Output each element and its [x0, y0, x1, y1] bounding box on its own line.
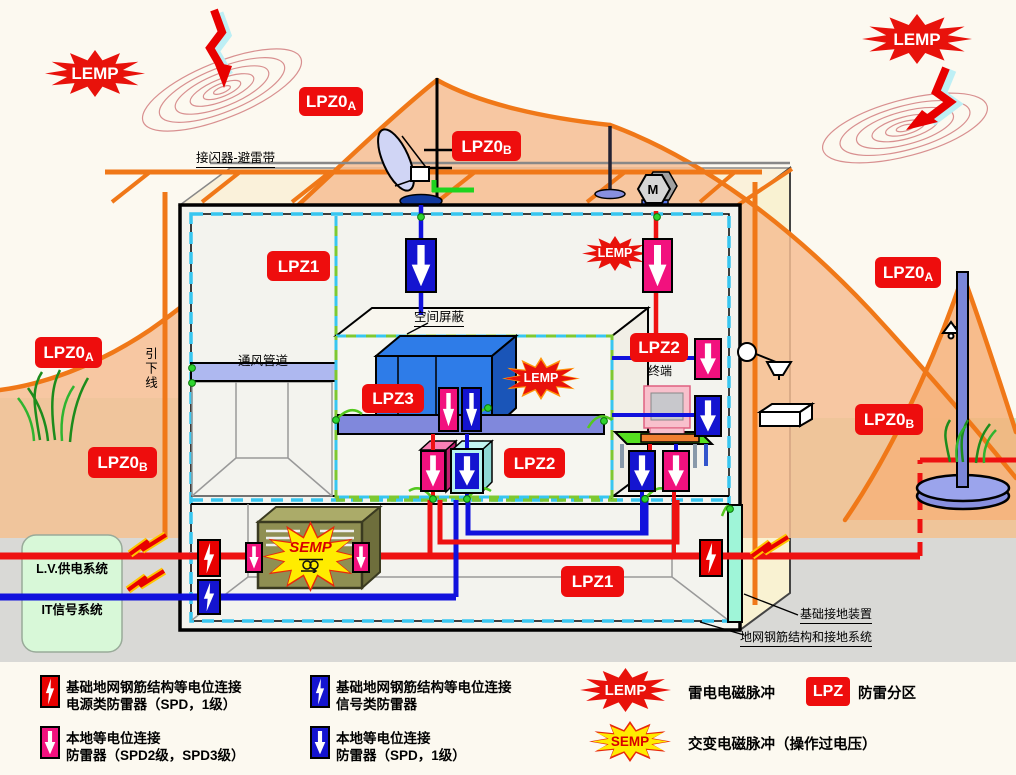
bolt-icon [315, 678, 326, 704]
spd-antenna [405, 238, 437, 293]
down-arrow-icon [633, 455, 650, 486]
badge-sub: A [924, 271, 933, 283]
motor-label: M [648, 182, 659, 197]
legend-spd-power-icon [40, 675, 60, 708]
down-arrow-icon [465, 393, 477, 427]
down-arrow-icon [699, 400, 716, 431]
lemp-burst-top-left: LEMP [45, 50, 145, 97]
spd-power-exit [699, 539, 723, 577]
lemp-text: LEMP [45, 50, 145, 97]
space-shield-label: 空间屏蔽 [414, 306, 464, 327]
semp-text: SEMP [589, 721, 671, 762]
badge-lpz0b-right: LPZ0B [855, 404, 923, 435]
badge-sub: B [905, 418, 914, 430]
bolt-icon [704, 543, 718, 574]
down-arrow-icon [411, 245, 431, 287]
legend-text: 防雷器（SPD2级，SPD3级） [66, 744, 245, 764]
spd-lpz2-signal [452, 450, 482, 492]
spd-cabinet-power [438, 387, 459, 432]
badge-lpz0b-left: LPZ0B [88, 447, 157, 478]
spd-signal-entry [197, 579, 221, 615]
legend-text: 防雷器（SPD，1级） [336, 744, 466, 764]
lemp-burst-inner: LEMP [502, 357, 580, 400]
lightning-protection-zone-diagram: LPZ0A LPZ0B LPZ1 LPZ0A LPZ0B LPZ0A LPZ0B… [0, 0, 1016, 775]
legend-spd-local23-icon [40, 726, 60, 759]
badge-text: LPZ1 [278, 258, 320, 275]
down-arrow-icon [667, 455, 684, 486]
lemp-text: LEMP [580, 668, 671, 712]
badge-text: LPZ [813, 684, 843, 700]
badge-lpz1-top: LPZ1 [267, 251, 330, 281]
badge-lpz0a-right: LPZ0A [875, 257, 941, 288]
lv-power-label: L.V.供电系统 [24, 558, 120, 577]
badge-lpz2-right: LPZ2 [630, 333, 688, 362]
down-conductor-label: 引下线 [141, 347, 160, 391]
legend-text: 信号类防雷器 [336, 693, 417, 713]
badge-lpz0b-top: LPZ0B [452, 131, 521, 161]
transformer-icon [296, 557, 326, 573]
semp-text: SEMP [262, 521, 359, 592]
lemp-text: LEMP [582, 236, 648, 271]
semp-label: SEMP [289, 540, 332, 555]
foundation-ground-label: 基础接地装置 [800, 605, 872, 624]
wall-lamp-icon [738, 343, 756, 361]
legend-spd-signal-icon [310, 675, 330, 708]
down-arrow-icon [249, 546, 259, 568]
down-arrow-icon [314, 731, 326, 755]
legend-text: 防雷分区 [858, 682, 916, 703]
down-arrow-icon [699, 343, 716, 374]
badge-text: LPZ0 [864, 411, 906, 428]
badge-lpz3: LPZ3 [362, 384, 424, 413]
terminal-label: 终端 [648, 362, 672, 379]
legend-lemp-burst: LEMP [580, 668, 671, 712]
legend-text: 电源类防雷器（SPD，1级） [66, 693, 236, 713]
projector-box-icon [760, 412, 800, 426]
badge-lpz0a-top: LPZ0A [299, 87, 363, 116]
ground-grid-label: 地网钢筋结构和接地系统 [740, 628, 872, 647]
badge-lpz2-inner: LPZ2 [504, 448, 565, 478]
spd-cabinet-left [245, 542, 263, 573]
badge-text: LPZ0 [97, 454, 139, 471]
badge-text: LPZ1 [572, 573, 614, 590]
spd-cabinet-signal [461, 387, 482, 432]
legend-text: 交变电磁脉冲（操作过电压） [688, 733, 877, 754]
spd-power-entry [197, 539, 221, 577]
spd-terminal-upper [694, 338, 722, 380]
badge-text: LPZ0 [43, 344, 85, 361]
badge-text: LPZ0 [883, 264, 925, 281]
semp-burst-main: SEMP [262, 521, 359, 592]
badge-text: LPZ2 [514, 455, 556, 472]
legend-text: 雷电电磁脉冲 [688, 682, 775, 703]
vent-duct-label: 通风管道 [238, 350, 288, 369]
bolt-icon [45, 678, 56, 704]
spd-below-terminal-power [662, 450, 690, 492]
air-terminal-label: 接闪器-避雷带 [196, 147, 275, 168]
down-arrow-icon [458, 456, 475, 486]
legend-lpz-badge: LPZ [806, 677, 850, 706]
lemp-text: LEMP [862, 14, 972, 64]
badge-sub: A [347, 100, 356, 112]
lemp-text: LEMP [502, 357, 580, 400]
badge-lpz1-bottom: LPZ1 [561, 566, 624, 597]
foundation-ground-strip [728, 505, 742, 622]
badge-lpz0a-left: LPZ0A [35, 337, 102, 368]
badge-sub: A [85, 351, 94, 363]
lemp-burst-roof: LEMP [582, 236, 648, 271]
spd-below-terminal-signal [628, 450, 656, 492]
down-arrow-icon [648, 245, 667, 287]
badge-text: LPZ0 [306, 93, 348, 110]
lemp-burst-top-right: LEMP [862, 14, 972, 64]
it-signal-label: IT信号系统 [24, 599, 120, 618]
legend-semp-burst: SEMP [589, 721, 671, 762]
bolt-icon [202, 583, 216, 612]
badge-sub: B [139, 461, 148, 473]
badge-sub: B [503, 144, 512, 156]
spd-lpz2-power [420, 450, 446, 492]
down-arrow-icon [44, 731, 56, 755]
badge-text: LPZ2 [638, 339, 680, 356]
spd-terminal-lower [694, 395, 722, 437]
down-arrow-icon [442, 393, 454, 427]
down-arrow-icon [425, 455, 441, 486]
legend-spd-local1-icon [310, 726, 330, 759]
badge-text: LPZ0 [461, 138, 503, 155]
bolt-icon [202, 543, 216, 574]
badge-text: LPZ3 [372, 390, 414, 407]
